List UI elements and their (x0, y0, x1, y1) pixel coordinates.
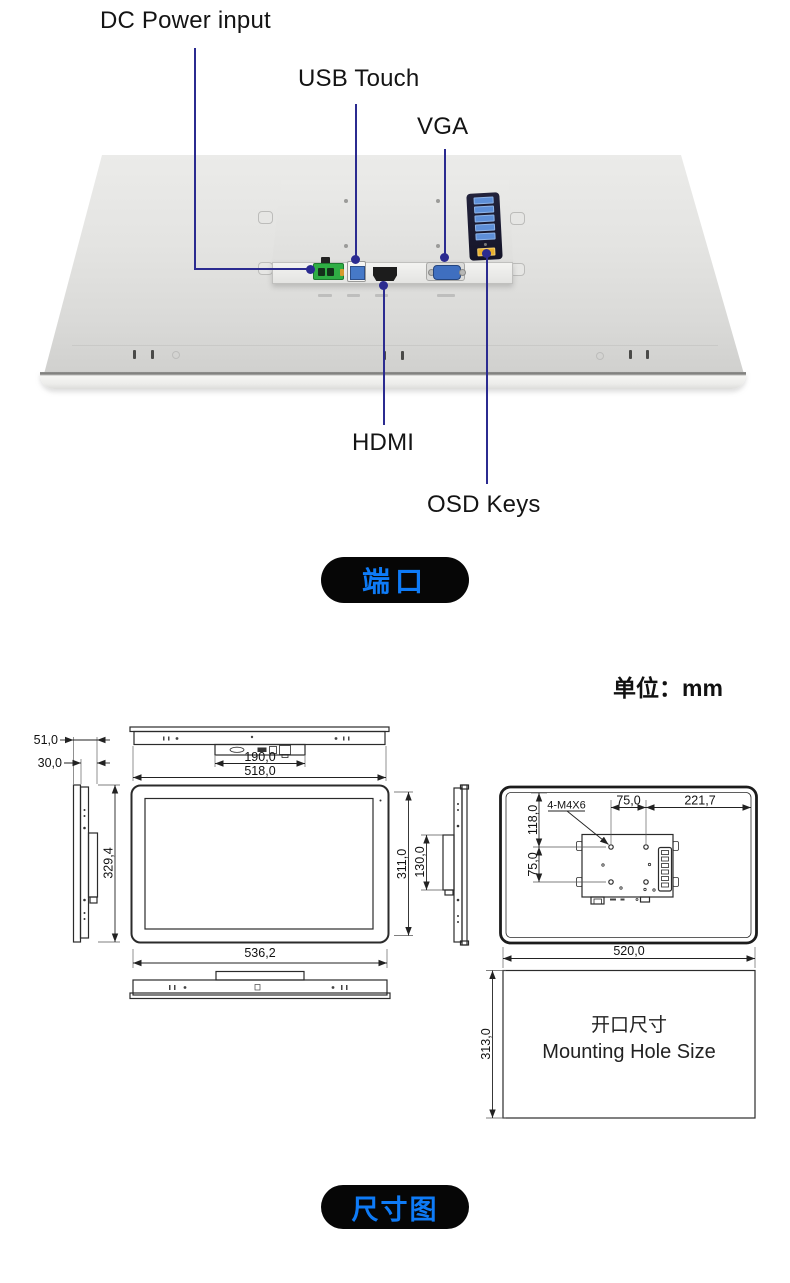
panel-seam-line (72, 345, 718, 346)
vga-port-inner (433, 265, 461, 280)
dim-port-area-width: 190,0 (244, 750, 275, 764)
label-vga: VGA (417, 113, 468, 141)
dim-vesa-horizontal: 75,0 (616, 794, 640, 808)
vga-screw (459, 269, 466, 276)
back-view-osd-keypad (659, 848, 672, 892)
label-usb-touch: USB Touch (298, 65, 419, 93)
leader-line-usb (355, 104, 357, 263)
vesa-hole (344, 244, 348, 248)
port-label-mark (318, 294, 332, 297)
leader-dot-dc (306, 265, 315, 274)
bezel-slot (151, 350, 154, 359)
osd-button (475, 232, 495, 240)
osd-led (484, 243, 487, 246)
port-label-mark (437, 294, 455, 297)
hdmi-port (373, 267, 397, 281)
dim-depth-total: 51,0 (34, 733, 58, 747)
osd-button (474, 214, 494, 222)
vesa-hole (436, 244, 440, 248)
dim-right-offset: 221,7 (684, 794, 715, 808)
dim-rear-box-height: 130,0 (413, 846, 427, 877)
side-view-dots (83, 809, 86, 920)
bezel-hole (172, 351, 180, 359)
dim-cutout-width: 520,0 (613, 944, 644, 958)
leader-dot-hdmi (379, 281, 388, 290)
dim-depth-rear: 30,0 (38, 756, 62, 770)
bezel-hole (596, 352, 604, 360)
label-dc-power: DC Power input (100, 7, 271, 35)
size-badge: 尺寸图 (321, 1185, 469, 1229)
port-label-mark (375, 294, 388, 297)
drawing-top-view: 190,0 518,0 (130, 727, 389, 781)
osd-button (473, 197, 493, 205)
osd-button (474, 223, 494, 231)
label-osd-keys: OSD Keys (427, 491, 541, 519)
power-terminal-hole (327, 268, 334, 276)
mount-ear (258, 211, 273, 224)
label-screw-spec: 4-M4X6 (547, 800, 586, 812)
leader-line-osd (486, 253, 488, 484)
drawing-side-view-right (443, 785, 469, 945)
bezel-slot (629, 350, 632, 359)
bottom-view-marks (169, 985, 348, 991)
back-view-connectors (591, 897, 650, 904)
power-terminal-screw (340, 269, 344, 276)
dim-front-height: 311,0 (395, 849, 409, 879)
back-view-small-holes (602, 863, 655, 891)
drawing-mounting-hole: 313,0 开口尺寸 Mounting Hole Size (479, 971, 755, 1119)
ports-badge: 端口 (321, 557, 469, 603)
size-badge-label: 尺寸图 (352, 1188, 439, 1227)
top-view-marks (163, 736, 350, 741)
drawing-side-view-left: 51,0 30,0 329,4 (34, 733, 120, 942)
leader-line-dc (194, 48, 196, 270)
dim-front-width: 536,2 (244, 946, 275, 960)
leader-line-hdmi (383, 285, 385, 425)
usb-touch-port (347, 261, 366, 282)
back-view-osd-buttons (662, 851, 669, 888)
mounting-hole-title-en: Mounting Hole Size (542, 1041, 715, 1063)
dim-vesa-top-offset: 118,0 (526, 805, 540, 835)
vesa-hole (344, 199, 348, 203)
dim-side-height: 329,4 (102, 847, 116, 878)
vesa-hole (436, 199, 440, 203)
side-view-right-dots (457, 803, 460, 923)
usb-port-inner (350, 266, 365, 280)
mounting-hole-title-cn: 开口尺寸 (591, 1014, 667, 1036)
dim-vesa-vertical: 75,0 (526, 852, 540, 876)
unit-label: 单位：mm (613, 669, 723, 703)
dim-rear-width: 518,0 (244, 764, 275, 778)
mount-ear (510, 212, 525, 225)
port-label-mark (347, 294, 360, 297)
product-spec-page: DC Power input USB Touch VGA HDMI OSD Ke… (0, 0, 790, 1283)
label-hdmi: HDMI (352, 429, 414, 457)
drawing-bottom-view: 536,2 (130, 946, 390, 999)
bezel-slot (646, 350, 649, 359)
dc-power-port (313, 263, 344, 280)
bezel-slot (401, 351, 404, 360)
monitor-front-bezel-edge (40, 372, 746, 389)
drawing-front-view: 311,0 130,0 (132, 786, 449, 943)
leader-dot-osd (482, 249, 491, 258)
leader-dot-usb (351, 255, 360, 264)
drawing-back-view: 118,0 75,0 4-M4X6 75,0 221,7 520,0 (501, 787, 757, 968)
dimension-drawings: 51,0 30,0 329,4 (0, 700, 790, 1140)
leader-line-dc (194, 268, 314, 270)
ports-badge-label: 端口 (362, 560, 428, 600)
leader-line-vga (444, 149, 446, 261)
vga-port (426, 262, 465, 281)
bezel-slot (133, 350, 136, 359)
osd-button (473, 206, 493, 214)
leader-dot-vga (440, 253, 449, 262)
power-terminal-hole (318, 268, 325, 276)
dim-cutout-height: 313,0 (479, 1028, 493, 1059)
